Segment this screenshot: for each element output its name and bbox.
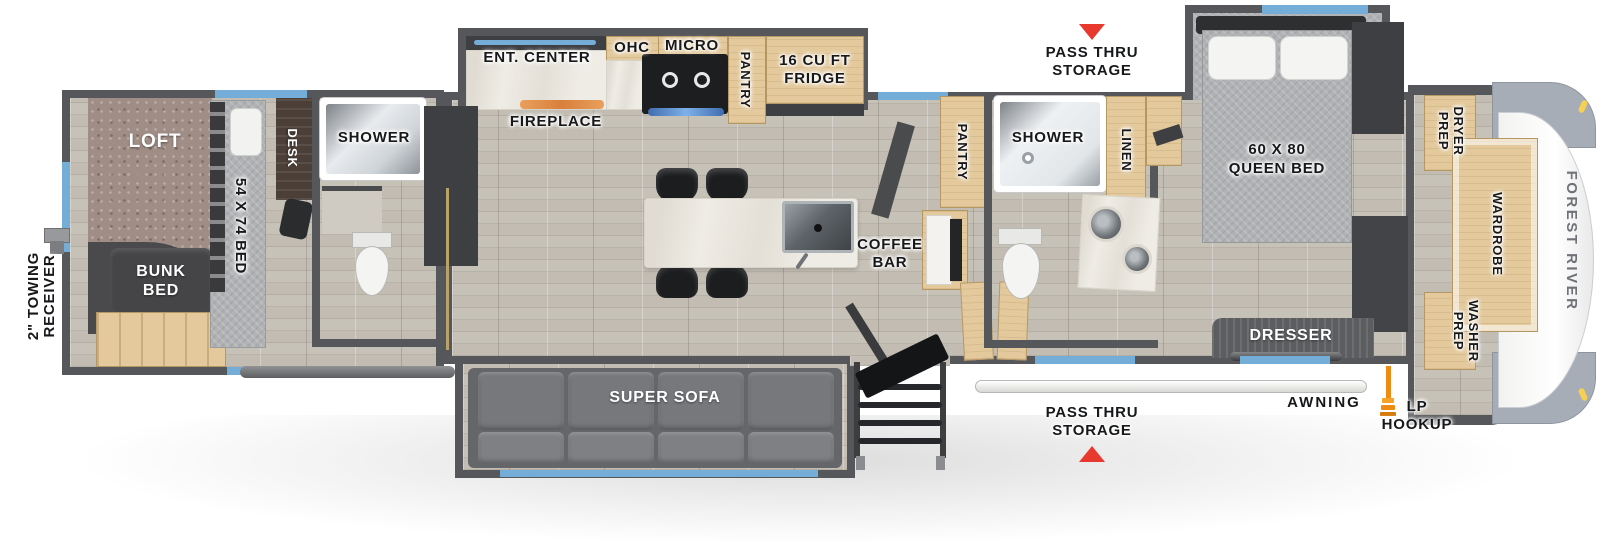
coffee-bar-label: COFFEE BAR [848,236,932,272]
sofa-back-4 [748,372,834,430]
rear-bath-bottom-wall [312,339,444,347]
rear-shower-label: SHOWER [328,130,420,150]
kitchen-counter [606,60,646,110]
bunk-bed-size-label: 54 X 74 BED [232,170,248,282]
awning-label: AWNING [1263,395,1385,415]
rear-awning-roller [240,366,455,378]
desk-label: DESK [286,118,300,178]
ent-center-label: ENT. CENTER [468,50,606,70]
sofa-back-1 [478,372,564,430]
sofa-seat-1 [478,432,564,464]
pass-thru-arrow-up-icon [1079,446,1105,462]
bunk-top-window [215,90,307,98]
linen-label: LINEN [1118,115,1134,185]
fridge-base [766,104,864,116]
bedroom-bottom-window-1 [1035,356,1135,364]
vanity-sink-2 [1122,244,1152,274]
island-chair-2 [706,168,748,202]
entry-steps-rail-right [940,362,946,458]
dresser-label: DRESSER [1230,328,1352,348]
bath-vanity [1078,194,1161,292]
pass-thru-arrow-down-icon [1079,24,1105,40]
brand-label: FOREST RIVER [1561,154,1579,328]
bunk-door [446,188,449,350]
floorplan-canvas: 2" TOWING RECEIVER LOFT BUNK BED 54 X 74… [0,0,1600,559]
washer-prep-label: WASHER PREP [1451,298,1481,364]
bedroom-bottom-window-2 [1240,356,1330,364]
queen-pillow-1 [1208,36,1276,80]
queen-slide-window [1262,5,1368,14]
oven-lightbar [648,108,724,116]
loft-label: LOFT [110,132,200,156]
bunk-closet [424,106,478,266]
entry-step-foot-right [936,456,945,470]
fridge-label: 16 CU FT FRIDGE [770,52,860,88]
fireplace-label: FIREPLACE [500,114,612,134]
ent-center-lightbar [474,40,596,45]
bedroom-cabinet-bottom [1352,216,1408,332]
ohc-label: OHC [604,40,660,60]
stove-burner-right [694,72,710,88]
mid-pantry-label: PANTRY [954,110,970,194]
island-chair-4 [706,264,748,298]
pass-thru-top-label: PASS THRU STORAGE [1034,44,1150,80]
kitchen-pantry-label: PANTRY [737,38,753,122]
awning-bar [975,380,1367,393]
micro-label: MICRO [654,38,730,58]
main-top-window [878,92,948,100]
vanity-sink-1 [1088,206,1124,242]
entry-step-4 [858,438,942,444]
bunk-bed-label: BUNK BED [118,262,204,298]
sofa-seat-3 [658,432,744,464]
mid-shower-drain [1022,152,1034,164]
bedroom-cabinet-top [1352,22,1404,134]
queen-pillow-2 [1280,36,1348,80]
rear-bath-wall [312,95,320,347]
stove [642,54,728,114]
sofa-seat-2 [568,432,654,464]
bunk-storage-steps [96,312,226,367]
island-chair-1 [656,168,698,202]
entry-step-3 [858,420,942,426]
sofa-seat-4 [748,432,834,464]
coffee-bar-front [950,219,962,281]
lp-pipe [1386,366,1391,400]
pass-thru-bottom-label: PASS THRU STORAGE [1034,404,1150,440]
bed-pillow [230,108,262,156]
queen-bed-label: 60 X 80 QUEEN BED [1214,140,1340,176]
super-sofa-label: SUPER SOFA [595,390,735,410]
mid-shower-label: SHOWER [998,130,1098,150]
rear-vanity [322,186,382,234]
towing-receiver-label: 2" TOWING RECEIVER [26,234,62,358]
lp-hookup-label: LP HOOKUP [1374,398,1460,434]
mid-bath-bottom-wall [984,340,1158,348]
wardrobe-label: WARDROBE [1489,178,1505,290]
sofa-slide-window [500,470,818,477]
dryer-prep-label: DRYER PREP [1436,101,1466,161]
bed-ladder [210,102,225,292]
fireplace-glow [520,100,604,109]
island-sink-drain [814,224,822,232]
mid-bath-left-wall [984,96,992,346]
island-chair-3 [656,264,698,298]
stove-burner-left [662,72,678,88]
entry-step-foot-left [856,456,865,470]
entry-step-2 [858,402,942,408]
